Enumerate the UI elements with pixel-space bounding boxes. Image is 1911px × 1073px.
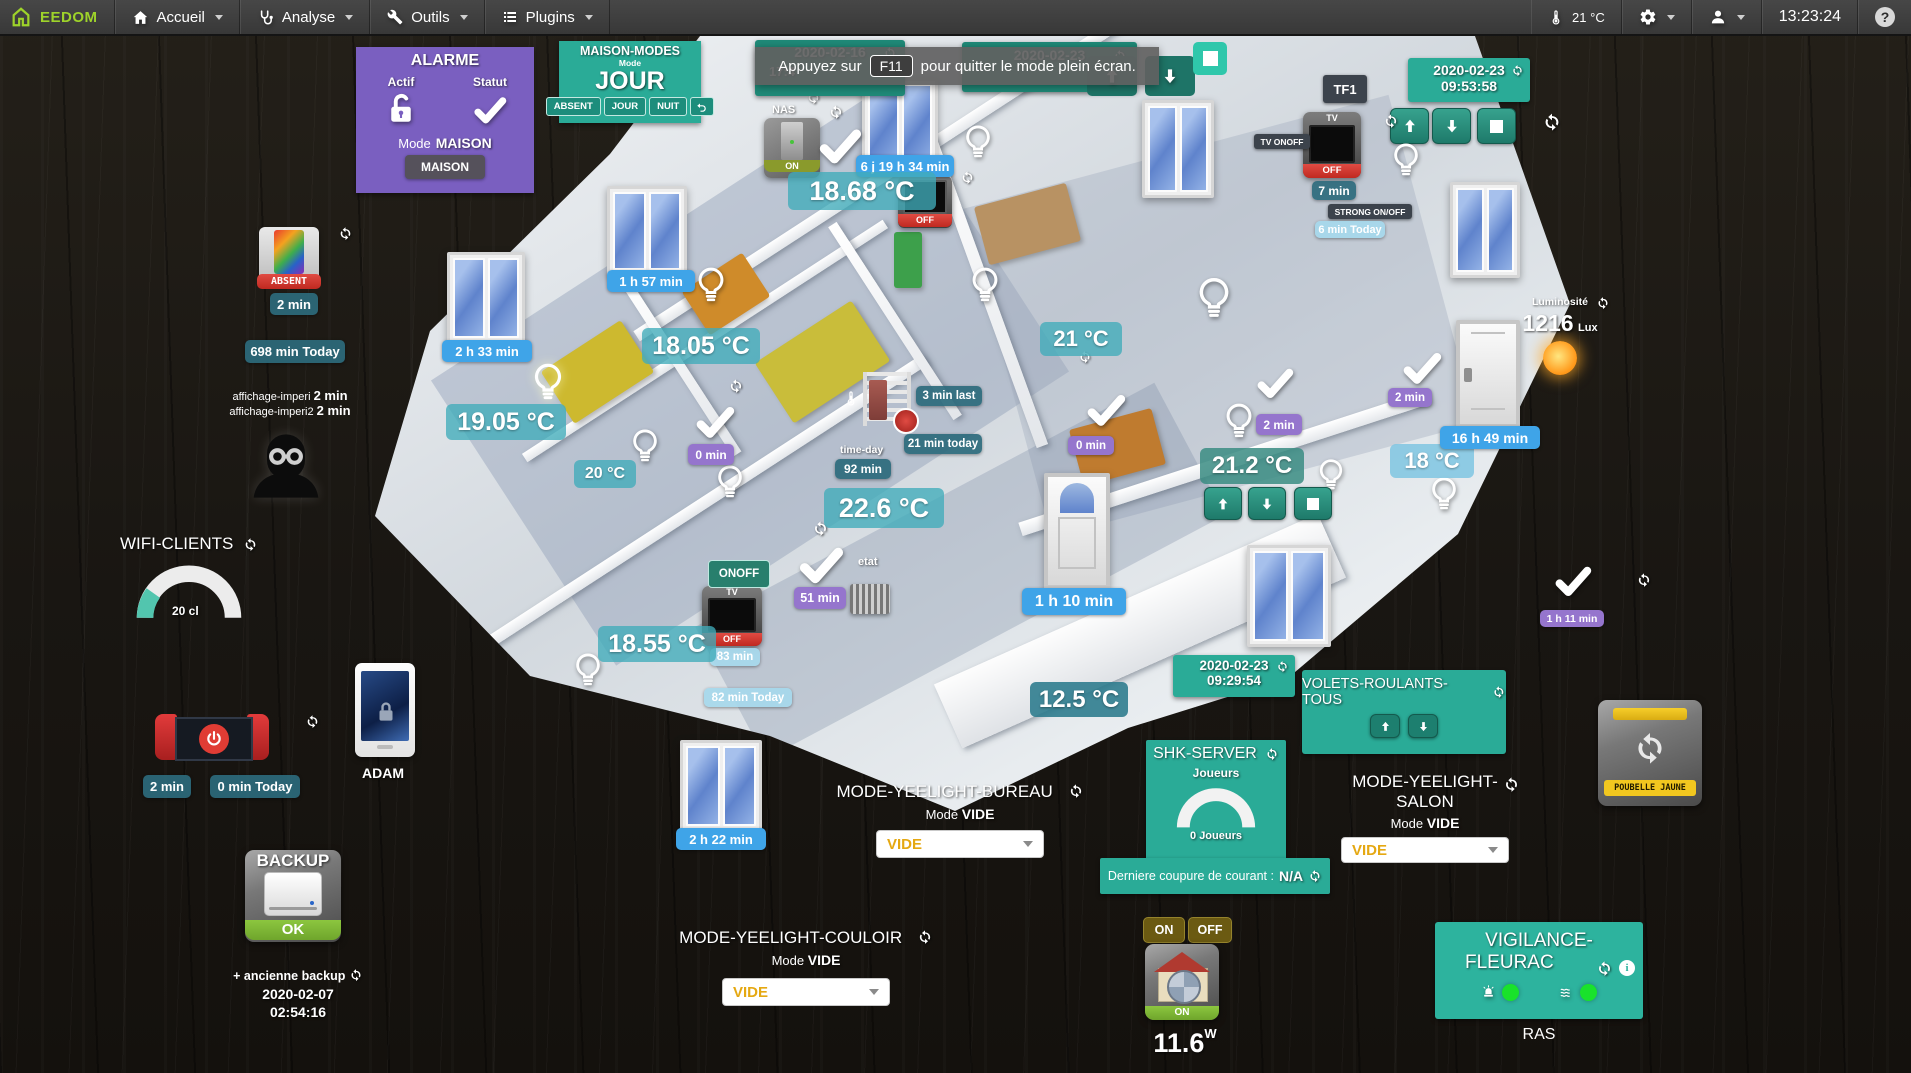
temp-text: 21.2 °C bbox=[1212, 452, 1292, 480]
mode-label: Mode bbox=[926, 807, 959, 822]
heater-down-button[interactable] bbox=[1248, 487, 1286, 520]
vigilance-title-1: VIGILANCE- bbox=[1485, 930, 1593, 951]
duration-badge: 0 min bbox=[1068, 436, 1114, 455]
tablet-state: ABSENT bbox=[257, 274, 321, 289]
notification-suffix: pour quitter le mode plein écran. bbox=[921, 58, 1136, 75]
line-value: 2 min bbox=[317, 403, 351, 418]
menu-label: Analyse bbox=[282, 9, 335, 26]
undo-icon bbox=[696, 101, 708, 113]
f11-key: F11 bbox=[870, 55, 913, 77]
backup-widget: BACKUP OK bbox=[245, 850, 341, 942]
tv-screen bbox=[1309, 125, 1355, 163]
temp-text: 18 °C bbox=[1404, 448, 1459, 474]
refresh-icon[interactable] bbox=[1265, 747, 1279, 761]
strong-onoff-chip: STRONG ON/OFF bbox=[1328, 204, 1412, 219]
furniture bbox=[894, 232, 922, 288]
badge-text: 21 min today bbox=[908, 438, 978, 450]
badge-text: 3 min last bbox=[922, 390, 975, 402]
tv-right-widget[interactable]: TV OFF bbox=[1303, 112, 1361, 178]
chevron-down-icon bbox=[1023, 841, 1033, 847]
sun-icon bbox=[1543, 341, 1577, 375]
refresh-icon[interactable] bbox=[1503, 776, 1520, 793]
duration-badge: 2 h 33 min bbox=[442, 340, 532, 362]
temperature-reading: 21 °C bbox=[1040, 322, 1122, 356]
volets-up-button[interactable] bbox=[1370, 714, 1400, 738]
jeedom-house-icon bbox=[10, 6, 32, 28]
list-icon bbox=[502, 9, 518, 25]
badge-text: 0 min bbox=[695, 448, 726, 462]
refresh-icon[interactable] bbox=[828, 104, 844, 120]
poubelle-widget: POUBELLE JAUNE bbox=[1598, 700, 1702, 806]
fullscreen-notification: Appuyez sur F11 pour quitter le mode ple… bbox=[755, 47, 1159, 85]
duration-badge: 83 min bbox=[710, 648, 760, 666]
line-label: affichage-imperi2 bbox=[229, 406, 313, 418]
temperature-reading: 18.05 °C bbox=[642, 328, 760, 364]
chevron-down-icon bbox=[460, 15, 468, 20]
backup-link[interactable]: + ancienne backup bbox=[228, 968, 368, 983]
players-gauge bbox=[1173, 784, 1259, 832]
mode-undo-button[interactable] bbox=[690, 97, 714, 116]
refresh-icon[interactable] bbox=[917, 929, 933, 945]
switch-console-widget[interactable] bbox=[155, 708, 269, 766]
vmc-widget[interactable]: ON bbox=[1145, 944, 1219, 1020]
luminosite-label: Luminosité bbox=[1510, 296, 1610, 308]
chevron-down-icon bbox=[1488, 847, 1498, 853]
gear-icon bbox=[1639, 8, 1657, 26]
yeelight-couloir-widget: MODE-YEELIGHT-COULOIR Mode VIDE VIDE bbox=[676, 928, 936, 1012]
affichage-line-1: affichage-imperi 2 min bbox=[225, 388, 355, 403]
mode-label: Mode bbox=[398, 136, 431, 151]
backup-date: 2020-02-07 bbox=[228, 986, 368, 1002]
temp-text: 18.05 °C bbox=[652, 332, 750, 361]
check-icon bbox=[1402, 348, 1442, 388]
luminosite-widget: Luminosité 1216 Lux bbox=[1510, 296, 1610, 396]
line-value: 2 min bbox=[314, 388, 348, 403]
duration-badge: 2 min bbox=[1388, 388, 1432, 407]
window-icon bbox=[680, 740, 762, 832]
wrench-icon bbox=[387, 9, 403, 25]
adam-tablet-widget bbox=[355, 663, 415, 757]
navbar: EEDOM Accueil Analyse Outils Plugins 21 … bbox=[0, 0, 1911, 36]
window-icon bbox=[1142, 100, 1214, 198]
bulb-icon[interactable] bbox=[712, 460, 748, 502]
arrow-up-icon bbox=[1401, 117, 1419, 135]
menu-accueil[interactable]: Accueil bbox=[115, 0, 240, 34]
chevron-down-icon bbox=[1667, 15, 1675, 20]
couloir-title: MODE-YEELIGHT-COULOIR bbox=[679, 928, 902, 947]
badge-text: 0 min bbox=[1076, 440, 1106, 452]
shk-footer: Derniere coupure de courant : N/A bbox=[1100, 858, 1330, 894]
select-value: VIDE bbox=[887, 836, 922, 853]
window-icon bbox=[447, 252, 525, 344]
refresh-icon[interactable] bbox=[1636, 572, 1652, 588]
menu-label: Plugins bbox=[526, 9, 575, 26]
console-today-badge: 0 min Today bbox=[210, 775, 300, 798]
refresh-icon[interactable] bbox=[1068, 783, 1084, 799]
link-text: + ancienne backup bbox=[233, 969, 345, 983]
refresh-icon[interactable] bbox=[1308, 869, 1322, 883]
navbar-temperature: 21 °C bbox=[1531, 0, 1622, 34]
bin-lid bbox=[1613, 708, 1687, 720]
salon-title-2: SALON bbox=[1396, 792, 1454, 811]
check-icon bbox=[473, 93, 507, 127]
info-icon[interactable]: i bbox=[1619, 960, 1635, 976]
settings-menu[interactable] bbox=[1622, 0, 1692, 34]
wifi-title: WIFI-CLIENTS bbox=[120, 534, 233, 554]
select-value: VIDE bbox=[1352, 842, 1387, 859]
temperature-reading: 18.55 °C bbox=[598, 626, 716, 662]
bulb-on-icon[interactable] bbox=[528, 358, 568, 404]
console-badge: 2 min bbox=[143, 775, 191, 798]
volets-title: VOLETS-ROULANTS-TOUS bbox=[1302, 676, 1484, 708]
duration-badge: 1 h 11 min bbox=[1540, 610, 1604, 627]
badge-text: 1 h 10 min bbox=[1035, 593, 1113, 611]
temperature-reading: 21.2 °C bbox=[1200, 448, 1304, 484]
user-icon bbox=[1709, 8, 1727, 26]
button-label: ONOFF bbox=[719, 568, 759, 580]
badge-text: 698 min Today bbox=[250, 344, 339, 359]
tf1-label: TF1 bbox=[1333, 82, 1356, 97]
badge-text: 2 min bbox=[277, 297, 311, 312]
help-button[interactable]: ? bbox=[1858, 0, 1911, 34]
temperature-value: 21 °C bbox=[1572, 10, 1605, 25]
tablet-today-badge: 698 min Today bbox=[245, 340, 345, 363]
refresh-icon[interactable] bbox=[1492, 685, 1506, 699]
refresh-icon[interactable] bbox=[243, 537, 258, 552]
button-label: OFF bbox=[1198, 923, 1223, 937]
bulb-icon[interactable] bbox=[1220, 398, 1258, 442]
refresh-icon[interactable] bbox=[728, 378, 744, 394]
refresh-icon[interactable] bbox=[1511, 64, 1524, 77]
waves-icon bbox=[1559, 985, 1574, 1000]
chevron-down-icon bbox=[215, 15, 223, 20]
couloir-mode-select[interactable]: VIDE bbox=[722, 978, 890, 1006]
nas-widget[interactable]: ON bbox=[764, 118, 820, 178]
check-icon bbox=[1256, 364, 1294, 402]
power-reading: 11.6W bbox=[1140, 1026, 1230, 1059]
menu-analyse[interactable]: Analyse bbox=[240, 0, 370, 34]
clock-value: 13:23:24 bbox=[1779, 8, 1841, 26]
badge-text: 0 min Today bbox=[218, 779, 293, 794]
volets-widget: VOLETS-ROULANTS-TOUS bbox=[1302, 670, 1506, 754]
logo-text: EEDOM bbox=[40, 9, 98, 26]
power-value: 11.6 bbox=[1153, 1028, 1204, 1058]
affichage-line-2: affichage-imperi2 2 min bbox=[225, 403, 355, 418]
vmc-state: ON bbox=[1145, 1006, 1219, 1020]
chevron-down-icon bbox=[869, 989, 879, 995]
thermometer-icon bbox=[843, 390, 859, 406]
temperature-reading: 18.68 °C bbox=[788, 172, 936, 210]
notification-prefix: Appuyez sur bbox=[778, 58, 861, 75]
arrow-down-icon bbox=[1443, 117, 1461, 135]
label-text: POUBELLE JAUNE bbox=[1614, 783, 1686, 793]
actif-label: Actif bbox=[383, 75, 419, 89]
power-icon bbox=[205, 730, 223, 748]
temp-text: 22.6 °C bbox=[839, 493, 929, 524]
players-value: 0 Joueurs bbox=[1146, 830, 1286, 842]
time-text: 09:53:58 bbox=[1408, 78, 1530, 94]
duration-badge: 3 min last bbox=[916, 386, 982, 406]
maison-modes-title: MAISON-MODES bbox=[559, 41, 701, 58]
mode-label: Mode bbox=[1391, 816, 1424, 831]
date-widget-top-right: 2020-02-23 09:53:58 bbox=[1408, 58, 1530, 102]
onoff-button[interactable]: ONOFF bbox=[708, 560, 770, 588]
mode-value: VIDE bbox=[1427, 815, 1460, 831]
date-widget-mid: 2020-02-23 09:29:54 bbox=[1173, 655, 1295, 697]
arrow-up-icon bbox=[1379, 720, 1392, 733]
duration-badge: 92 min bbox=[835, 459, 891, 479]
coupure-value: N/A bbox=[1279, 868, 1303, 884]
vigilance-title-2: FLEURAC bbox=[1465, 952, 1554, 973]
badge-text: 16 h 49 min bbox=[1452, 430, 1528, 446]
duration-badge: 1 h 10 min bbox=[1022, 588, 1126, 615]
badge-text: 2 h 33 min bbox=[455, 344, 519, 359]
alarme-title: ALARME bbox=[356, 47, 534, 75]
tv-title: TV bbox=[1303, 112, 1361, 124]
stop-icon bbox=[1490, 120, 1503, 133]
badge-text: 1 h 11 min bbox=[1547, 613, 1598, 625]
mode-value: JOUR bbox=[559, 68, 701, 94]
bulb-icon[interactable] bbox=[1192, 272, 1236, 322]
salon-mode-select[interactable]: VIDE bbox=[1341, 837, 1509, 863]
backup-status: OK bbox=[245, 920, 341, 940]
arrow-down-icon bbox=[1417, 720, 1430, 733]
nas-state: ON bbox=[764, 160, 820, 172]
window-icon bbox=[1450, 182, 1520, 278]
bulb-icon[interactable] bbox=[1426, 472, 1462, 514]
menu-plugins[interactable]: Plugins bbox=[485, 0, 610, 34]
status-text: RAS bbox=[1523, 1026, 1556, 1043]
vigilance-widget: VIGILANCE- FLEURAC i bbox=[1435, 922, 1643, 1019]
navbar-clock: 13:23:24 bbox=[1762, 0, 1858, 34]
vmc-on-button[interactable]: ON bbox=[1143, 917, 1185, 943]
stop-icon bbox=[1307, 498, 1319, 510]
luminosite-unit: Lux bbox=[1578, 322, 1598, 334]
duration-badge: 21 min today bbox=[904, 434, 982, 454]
window-icon bbox=[607, 186, 687, 276]
bulb-icon[interactable] bbox=[966, 262, 1004, 306]
window-icon bbox=[1247, 545, 1331, 647]
mode-jour-button[interactable]: JOUR bbox=[604, 97, 646, 116]
button-label: ON bbox=[1155, 923, 1174, 937]
maison-modes-widget: MAISON-MODES Mode JOUR ABSENT JOUR NUIT bbox=[559, 41, 701, 123]
mode-absent-button[interactable]: ABSENT bbox=[546, 97, 601, 116]
lock-icon bbox=[373, 699, 399, 725]
strong-label: STRONG ON/OFF bbox=[1335, 207, 1406, 217]
refresh-icon[interactable] bbox=[1542, 112, 1562, 132]
power-unit: W bbox=[1204, 1026, 1216, 1041]
door-icon bbox=[1044, 473, 1110, 589]
tv-screen bbox=[708, 598, 756, 632]
menu-outils[interactable]: Outils bbox=[370, 0, 484, 34]
mode-value: VIDE bbox=[808, 952, 841, 968]
strong-today-badge: 6 min Today bbox=[1315, 221, 1385, 238]
alarme-widget: ALARME Actif Statut Mode MAISON MAISON bbox=[356, 47, 534, 193]
chevron-down-icon bbox=[345, 15, 353, 20]
badge-text: 6 min Today bbox=[1318, 224, 1381, 236]
house-fan-icon bbox=[1158, 952, 1206, 1000]
badge-text: 2 min bbox=[150, 779, 184, 794]
home-icon bbox=[132, 9, 149, 26]
players-label: Joueurs bbox=[1146, 766, 1286, 780]
menu-label: Accueil bbox=[157, 9, 205, 26]
backup-title: BACKUP bbox=[245, 850, 341, 872]
tablet-badge: 2 min bbox=[270, 293, 318, 315]
check-icon bbox=[798, 542, 844, 588]
check-icon bbox=[695, 402, 735, 442]
hdd-icon bbox=[264, 872, 322, 916]
tv-onoff-label: TV ONOFF bbox=[1261, 137, 1304, 147]
mode-label: Mode bbox=[772, 953, 805, 968]
jeedom-logo[interactable]: EEDOM bbox=[0, 0, 115, 34]
shk-title: SHK-SERVER bbox=[1153, 745, 1257, 763]
user-menu[interactable] bbox=[1692, 0, 1762, 34]
bulb-icon[interactable] bbox=[960, 120, 996, 162]
badge-text: 7 min bbox=[1318, 184, 1349, 198]
arrow-up-icon bbox=[1215, 496, 1231, 512]
adam-label: ADAM bbox=[362, 765, 404, 781]
status-dot bbox=[1502, 984, 1519, 1001]
shk-server-widget: SHK-SERVER Joueurs 0 Joueurs bbox=[1146, 740, 1286, 860]
chevron-down-icon bbox=[585, 15, 593, 20]
time-text: 09:29:54 bbox=[1173, 673, 1295, 688]
timeday-label: time-day bbox=[840, 444, 883, 456]
stop-icon bbox=[1203, 51, 1218, 66]
badge-text: 2 h 22 min bbox=[689, 832, 753, 847]
duration-badge: 16 h 49 min bbox=[1440, 426, 1540, 449]
badge-text: 51 min bbox=[800, 591, 840, 605]
tv-duration-badge: 7 min bbox=[1312, 181, 1356, 200]
temperature-reading: 19.05 °C bbox=[446, 404, 566, 440]
backup-time: 02:54:16 bbox=[228, 1004, 368, 1020]
duration-badge: 51 min bbox=[794, 587, 846, 609]
refresh-icon[interactable] bbox=[1596, 296, 1610, 310]
temp-text: 18.68 °C bbox=[809, 176, 914, 207]
badge-text: 92 min bbox=[844, 462, 882, 476]
line-label: affichage-imperi bbox=[232, 391, 310, 403]
heater-stop-button[interactable] bbox=[1294, 487, 1332, 520]
duration-badge: 2 min bbox=[1256, 414, 1302, 435]
luminosite-value: 1216 bbox=[1522, 310, 1573, 336]
recycle-icon bbox=[1632, 730, 1668, 766]
bulb-icon[interactable] bbox=[1388, 138, 1424, 180]
spy-avatar bbox=[248, 424, 324, 508]
refresh-icon[interactable] bbox=[1276, 660, 1289, 673]
vmc-off-button[interactable]: OFF bbox=[1188, 917, 1232, 943]
question-icon: ? bbox=[1875, 7, 1895, 27]
duration-badge: 82 min Today bbox=[704, 688, 792, 707]
tv-state: OFF bbox=[898, 214, 952, 227]
mode-nuit-button[interactable]: NUIT bbox=[649, 97, 687, 116]
stop-button-top[interactable] bbox=[1193, 42, 1227, 75]
temperature-reading: 20 °C bbox=[574, 460, 636, 488]
yeelight-salon-widget: MODE-YEELIGHT- SALON Mode VIDE VIDE bbox=[1330, 772, 1520, 877]
salon-title-1: MODE-YEELIGHT- bbox=[1352, 772, 1497, 791]
nas-label: NAS bbox=[772, 104, 795, 116]
coupure-label: Derniere coupure de courant : bbox=[1108, 869, 1274, 883]
stethoscope-icon bbox=[257, 9, 274, 26]
refresh-icon[interactable] bbox=[349, 968, 363, 982]
check-icon bbox=[1086, 390, 1126, 430]
refresh-icon[interactable] bbox=[960, 170, 975, 185]
tf1-chip: TF1 bbox=[1323, 75, 1367, 103]
bureau-title: MODE-YEELIGHT-BUREAU bbox=[836, 782, 1052, 801]
shutter-stop-button[interactable] bbox=[1477, 108, 1516, 144]
badge-text: 83 min bbox=[717, 651, 753, 663]
refresh-icon[interactable] bbox=[338, 226, 353, 241]
etat-label: etat bbox=[858, 556, 878, 568]
volets-down-button[interactable] bbox=[1408, 714, 1438, 738]
bureau-mode-select[interactable]: VIDE bbox=[876, 830, 1044, 858]
duration-badge: 0 min bbox=[688, 444, 734, 465]
shutter-down-button[interactable] bbox=[1432, 108, 1471, 144]
arrow-down-icon bbox=[1160, 66, 1180, 86]
vigilance-status: RAS bbox=[1435, 1026, 1643, 1044]
temp-text: 18.55 °C bbox=[608, 630, 706, 659]
temp-text: 21 °C bbox=[1053, 326, 1108, 352]
radiator-icon bbox=[850, 584, 890, 614]
status-dot bbox=[1580, 984, 1597, 1001]
temp-text: 19.05 °C bbox=[457, 408, 555, 437]
bulb-icon[interactable] bbox=[692, 262, 730, 306]
badge-text: 2 min bbox=[1395, 392, 1425, 404]
duration-badge: 2 h 22 min bbox=[676, 828, 766, 850]
badge-text: 82 min Today bbox=[712, 692, 785, 704]
siren-icon bbox=[1481, 985, 1496, 1000]
check-icon bbox=[1554, 562, 1592, 600]
badge-text: 1 h 57 min bbox=[619, 274, 683, 289]
towel-radiator-icon bbox=[855, 372, 911, 434]
select-value: VIDE bbox=[733, 984, 768, 1001]
heater-up-button[interactable] bbox=[1204, 487, 1242, 520]
menu-label: Outils bbox=[411, 9, 449, 26]
wifi-clients-widget: WIFI-CLIENTS 20 cl bbox=[120, 534, 300, 644]
refresh-icon[interactable] bbox=[305, 714, 320, 729]
tv-onoff-chip: TV ONOFF bbox=[1254, 134, 1310, 149]
duration-badge: 1 h 57 min bbox=[607, 270, 695, 292]
thermometer-icon bbox=[1548, 9, 1564, 25]
badge-text: 2 min bbox=[1263, 418, 1294, 432]
wifi-gauge-label: 20 cl bbox=[172, 604, 199, 618]
temp-text: 12.5 °C bbox=[1039, 686, 1119, 714]
refresh-icon[interactable] bbox=[1383, 113, 1399, 129]
temperature-reading: 18 °C bbox=[1390, 444, 1474, 478]
temperature-reading: 22.6 °C bbox=[824, 488, 944, 528]
chevron-down-icon bbox=[1737, 15, 1745, 20]
mode-value: VIDE bbox=[962, 806, 995, 822]
mode-value: MAISON bbox=[436, 135, 492, 151]
alarme-mode-button[interactable]: MAISON bbox=[405, 155, 485, 179]
poubelle-label-bar: POUBELLE JAUNE bbox=[1604, 780, 1696, 796]
arrow-down-icon bbox=[1259, 496, 1275, 512]
temp-text: 20 °C bbox=[585, 465, 625, 483]
statut-label: Statut bbox=[473, 75, 507, 89]
refresh-icon[interactable] bbox=[1596, 960, 1613, 977]
unlock-icon[interactable] bbox=[383, 91, 419, 127]
yeelight-bureau-widget: MODE-YEELIGHT-BUREAU Mode VIDE VIDE bbox=[830, 782, 1090, 864]
tv-state: OFF bbox=[1303, 164, 1361, 178]
temperature-reading: 12.5 °C bbox=[1030, 682, 1128, 717]
